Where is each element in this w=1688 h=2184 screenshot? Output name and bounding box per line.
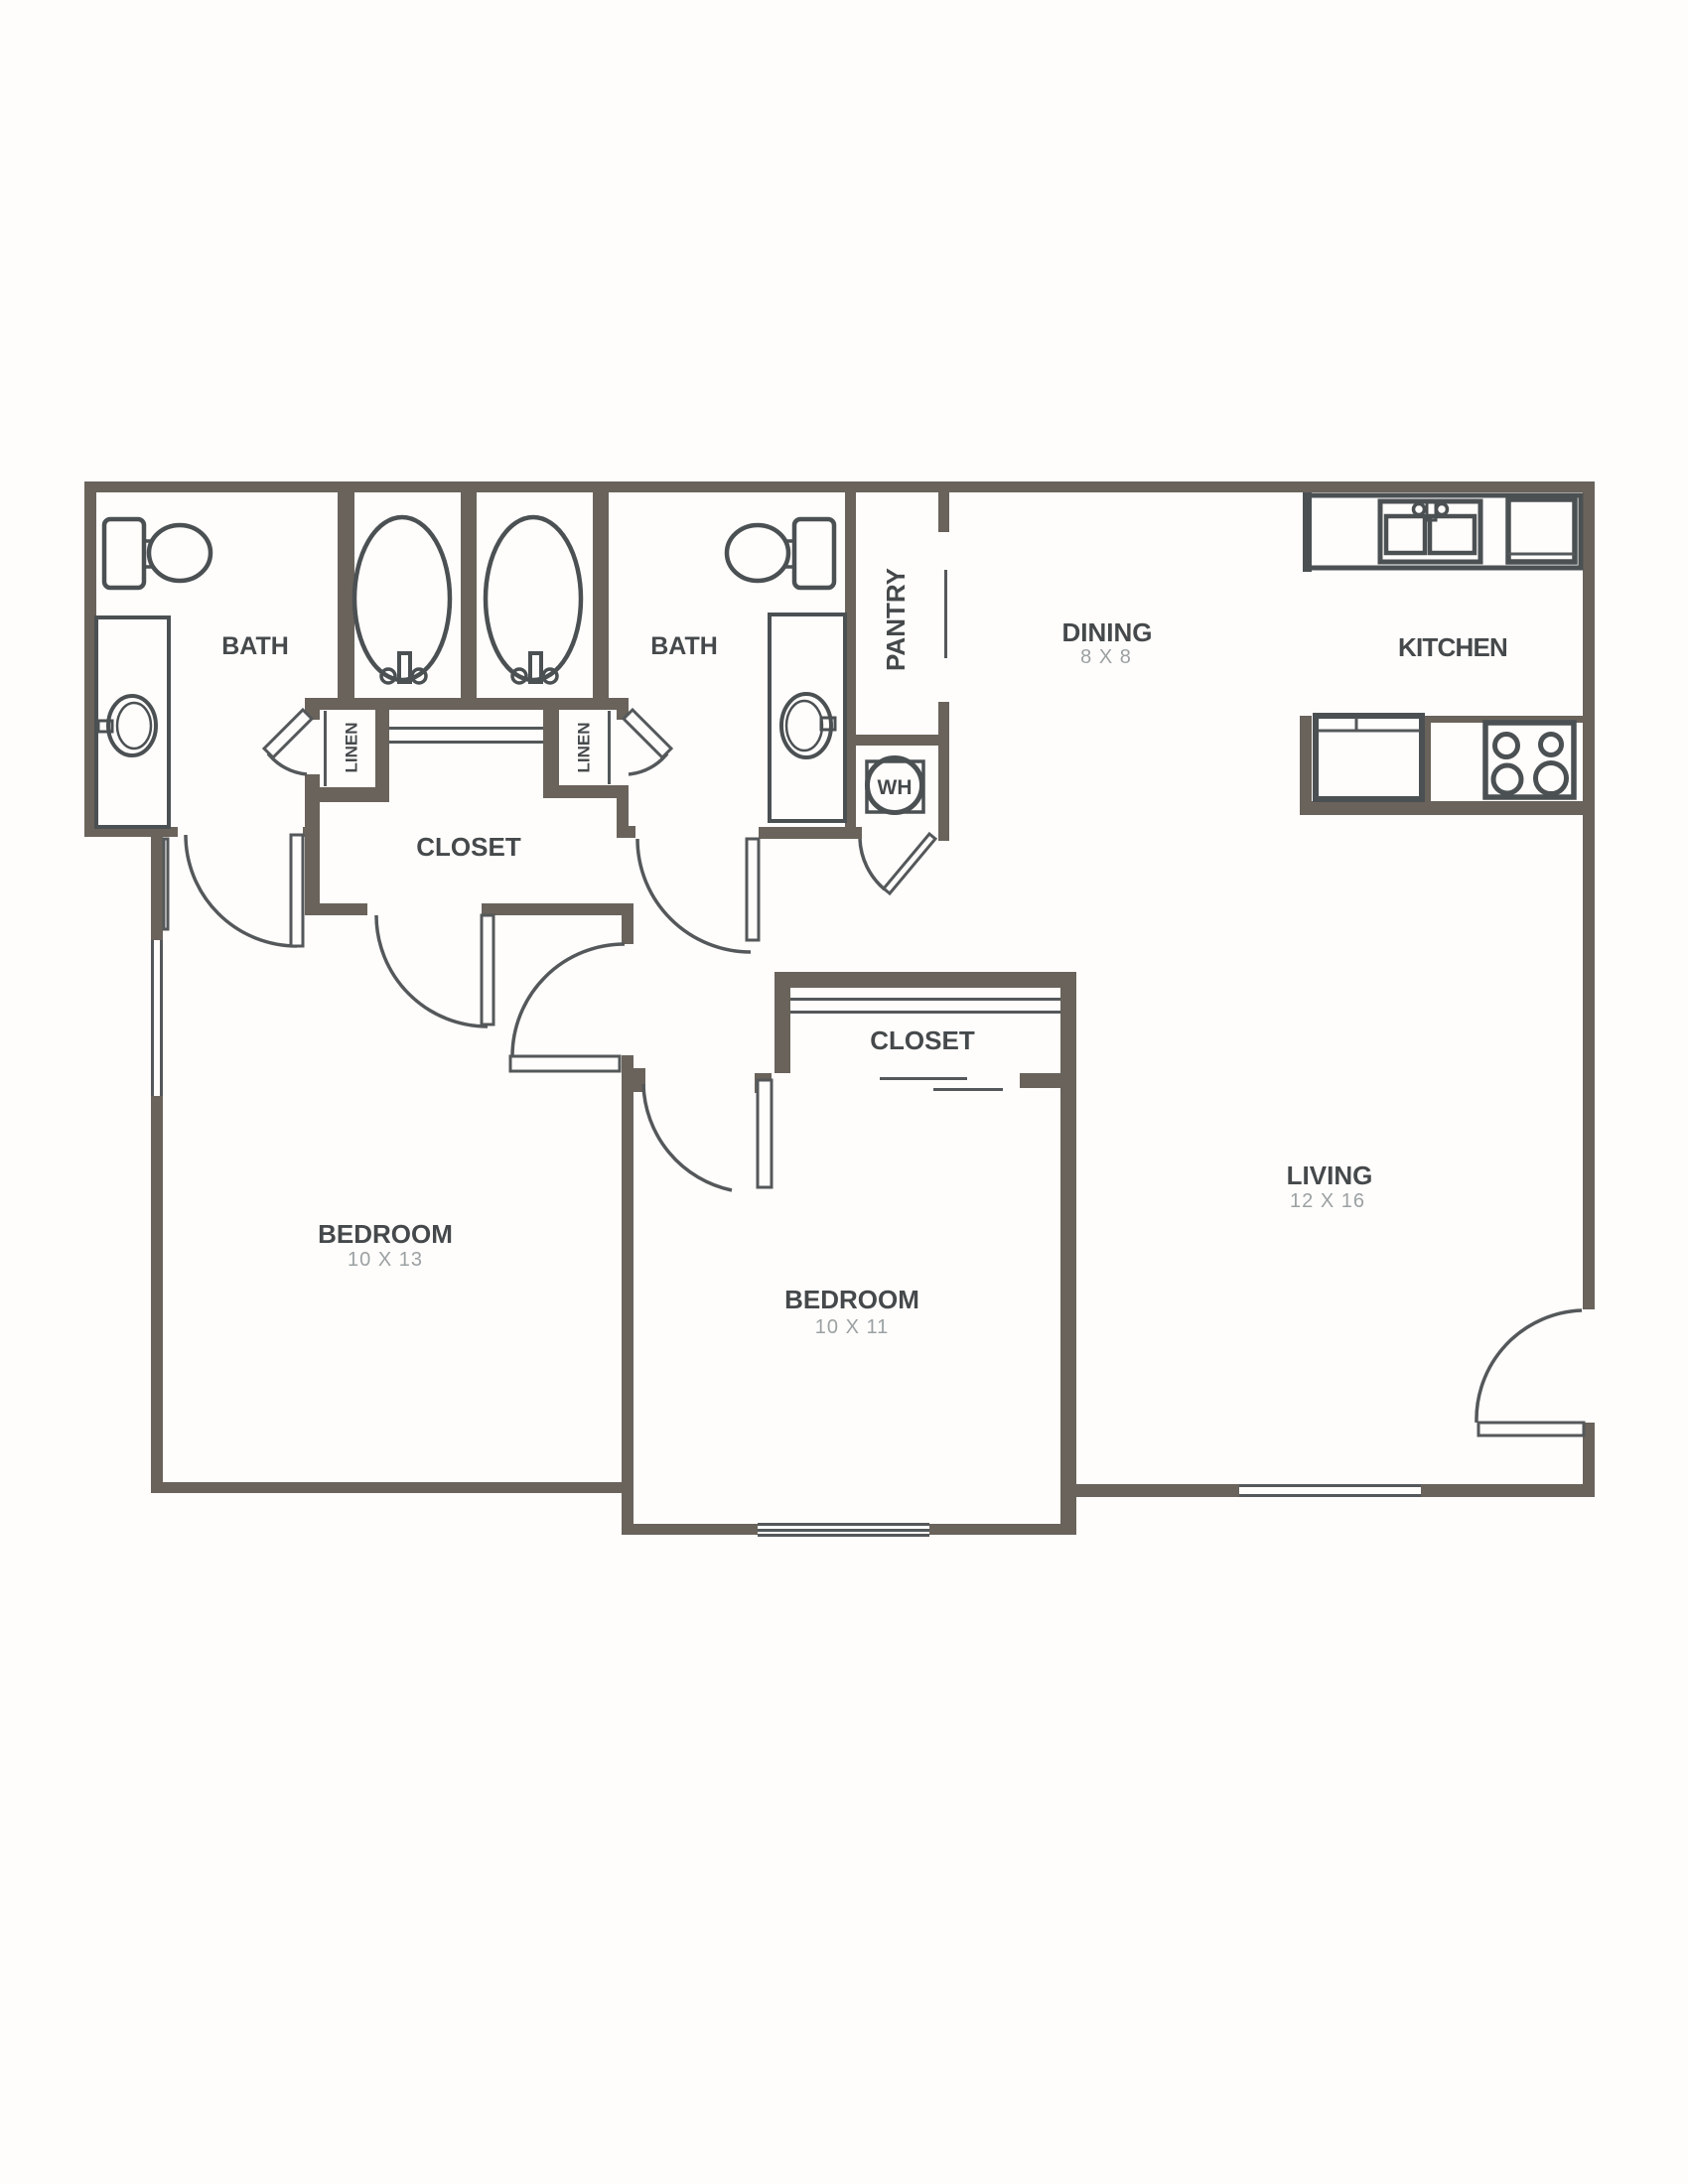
svg-text:8 X 8: 8 X 8 — [1080, 646, 1132, 668]
svg-text:10 X 13: 10 X 13 — [348, 1249, 423, 1271]
svg-text:LINEN: LINEN — [575, 723, 594, 773]
svg-text:PANTRY: PANTRY — [881, 568, 911, 671]
svg-text:12 X 16: 12 X 16 — [1290, 1190, 1365, 1212]
svg-text:WH: WH — [878, 776, 913, 799]
svg-text:BATH: BATH — [650, 632, 718, 660]
svg-text:10 X 11: 10 X 11 — [815, 1316, 889, 1338]
svg-text:CLOSET: CLOSET — [416, 832, 521, 862]
svg-text:DINING: DINING — [1062, 617, 1153, 647]
svg-text:BEDROOM: BEDROOM — [318, 1219, 453, 1249]
svg-text:LINEN: LINEN — [343, 723, 361, 773]
svg-text:BATH: BATH — [221, 632, 289, 660]
svg-text:BEDROOM: BEDROOM — [784, 1285, 919, 1314]
svg-text:LIVING: LIVING — [1287, 1160, 1373, 1190]
svg-text:CLOSET: CLOSET — [870, 1025, 975, 1055]
svg-text:KITCHEN: KITCHEN — [1398, 632, 1507, 662]
